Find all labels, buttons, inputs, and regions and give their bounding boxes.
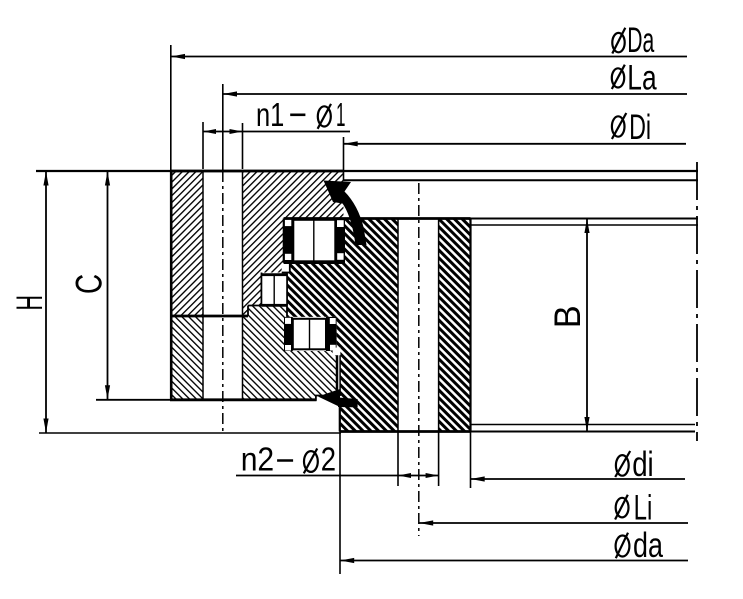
svg-text:di: di	[632, 445, 654, 484]
svg-text:H: H	[9, 295, 50, 311]
svg-text:C: C	[69, 274, 110, 294]
svg-text:La: La	[627, 59, 657, 98]
svg-text:B: B	[547, 305, 588, 328]
svg-text:1: 1	[336, 97, 346, 134]
svg-text:Da: Da	[627, 21, 654, 60]
svg-text:Di: Di	[629, 108, 651, 147]
svg-text:n2: n2	[241, 441, 275, 478]
svg-text:2: 2	[321, 441, 336, 478]
svg-text:n1: n1	[256, 97, 284, 134]
svg-text:Li: Li	[634, 488, 653, 527]
svg-text:da: da	[633, 526, 663, 565]
